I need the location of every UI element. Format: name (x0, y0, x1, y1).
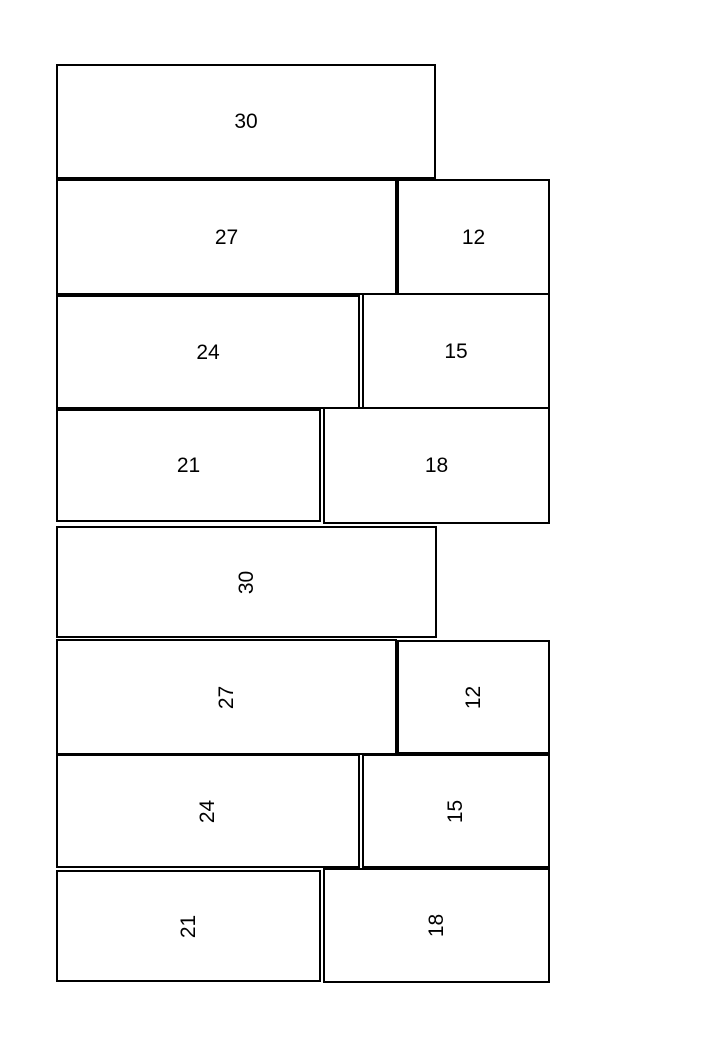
bar-box-top-12: 12 (397, 179, 550, 295)
bar-box-bottom-30: 30 (56, 526, 437, 638)
bar-box-bottom-18: 18 (323, 868, 550, 983)
bar-box-top-15: 15 (362, 293, 550, 409)
bar-box-bottom-15: 15 (362, 754, 550, 868)
bar-label: 18 (425, 455, 448, 476)
bar-box-top-27: 27 (56, 179, 397, 295)
bar-label: 12 (462, 227, 485, 248)
bar-label-rotated: 30 (236, 570, 257, 593)
bar-label: 21 (177, 455, 200, 476)
bar-label-rotated: 21 (178, 914, 199, 937)
bar-box-top-30: 30 (56, 64, 436, 179)
bar-label: 15 (444, 341, 467, 362)
bar-label-rotated: 18 (426, 914, 447, 937)
bar-label: 27 (215, 227, 238, 248)
bar-label: 24 (196, 342, 219, 363)
worksheet-page: 30 27 12 24 15 21 18 30 27 12 24 15 21 1… (0, 0, 720, 1040)
bar-box-bottom-24: 24 (56, 754, 360, 868)
bar-label-rotated: 12 (463, 685, 484, 708)
bar-box-top-24: 24 (56, 295, 360, 409)
bar-label: 30 (234, 111, 257, 132)
bar-box-top-18: 18 (323, 407, 550, 524)
bar-box-top-21: 21 (56, 409, 321, 522)
bar-box-bottom-21: 21 (56, 870, 321, 982)
bar-box-bottom-27: 27 (56, 639, 397, 755)
bar-label-rotated: 15 (445, 799, 466, 822)
bar-label-rotated: 27 (216, 685, 237, 708)
bar-label-rotated: 24 (197, 799, 218, 822)
bar-box-bottom-12: 12 (397, 640, 550, 754)
